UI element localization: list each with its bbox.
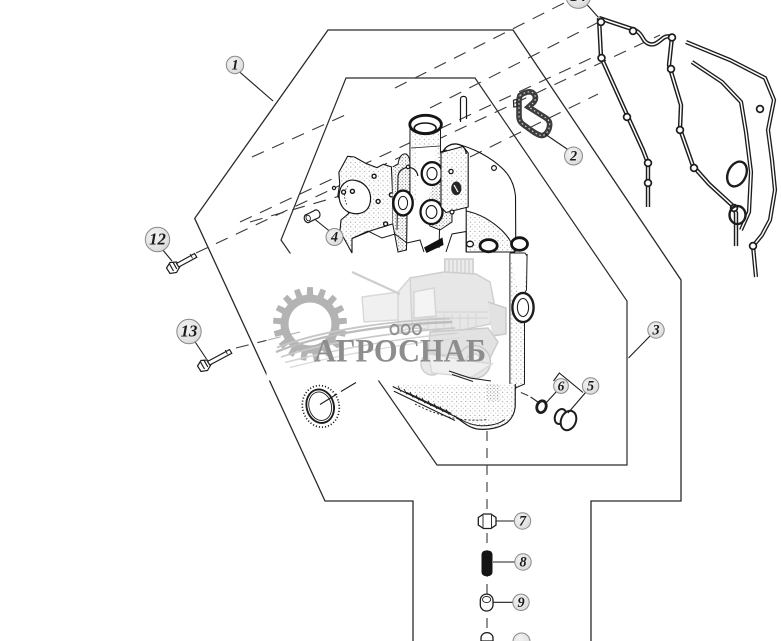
svg-text:9: 9 (517, 595, 524, 611)
svg-text:12: 12 (149, 230, 166, 249)
svg-text:8: 8 (519, 555, 526, 571)
svg-text:5: 5 (587, 379, 594, 395)
svg-text:2: 2 (569, 149, 577, 165)
svg-text:1: 1 (231, 58, 238, 74)
svg-text:7: 7 (519, 514, 527, 530)
svg-text:13: 13 (181, 322, 198, 341)
svg-text:3: 3 (651, 323, 659, 339)
svg-text:4: 4 (330, 230, 338, 246)
svg-text:14: 14 (570, 0, 587, 5)
svg-text:АГРОСНАБ: АГРОСНАБ (314, 334, 486, 370)
svg-text:6: 6 (558, 379, 565, 394)
